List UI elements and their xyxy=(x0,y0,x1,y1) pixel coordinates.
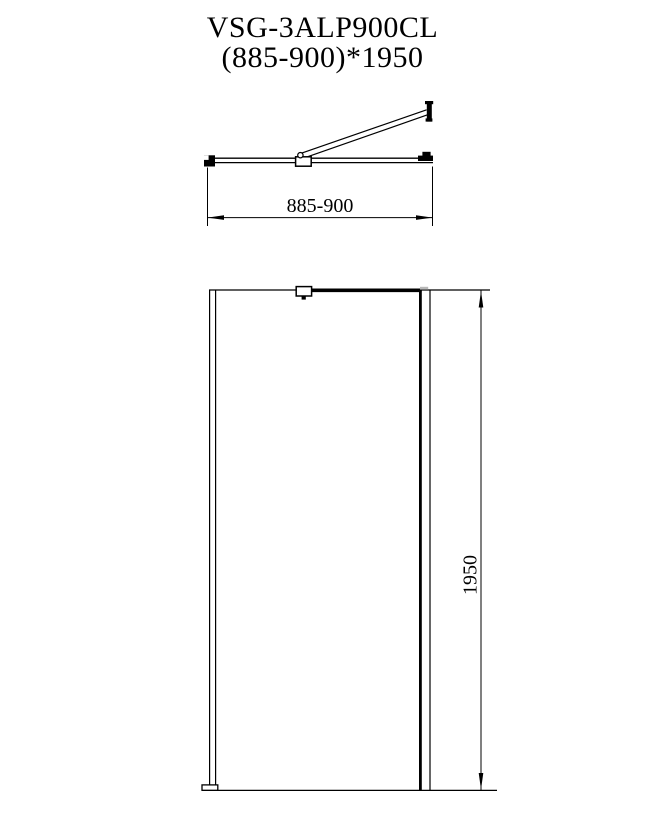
technical-drawing-page: VSG-3ALP900CL (885-900)*1950 xyxy=(0,0,645,813)
width-dim-arrow-right xyxy=(416,215,433,220)
width-dimension-label: 885-900 xyxy=(245,196,395,216)
top-view-bar-clamp xyxy=(296,153,312,167)
height-dim-arrow-bottom xyxy=(479,773,484,790)
height-dimension-label: 1950 xyxy=(461,525,481,626)
front-view-bar-end-mark xyxy=(420,287,428,290)
height-dim-arrow-top xyxy=(479,291,484,308)
front-view-panel-outline xyxy=(202,290,497,790)
top-view-support-wall-plate xyxy=(425,101,433,122)
front-view-bar-clamp xyxy=(296,287,311,300)
top-view-end-bracket-right xyxy=(418,152,433,161)
width-dim-arrow-left xyxy=(208,215,225,220)
drawing-linework xyxy=(0,0,645,813)
front-view xyxy=(202,287,497,791)
top-view-panel xyxy=(207,158,433,162)
front-view-foot-bracket xyxy=(202,785,218,790)
top-view-support-bar xyxy=(300,110,429,159)
top-view-wall-bracket-left xyxy=(204,155,215,166)
